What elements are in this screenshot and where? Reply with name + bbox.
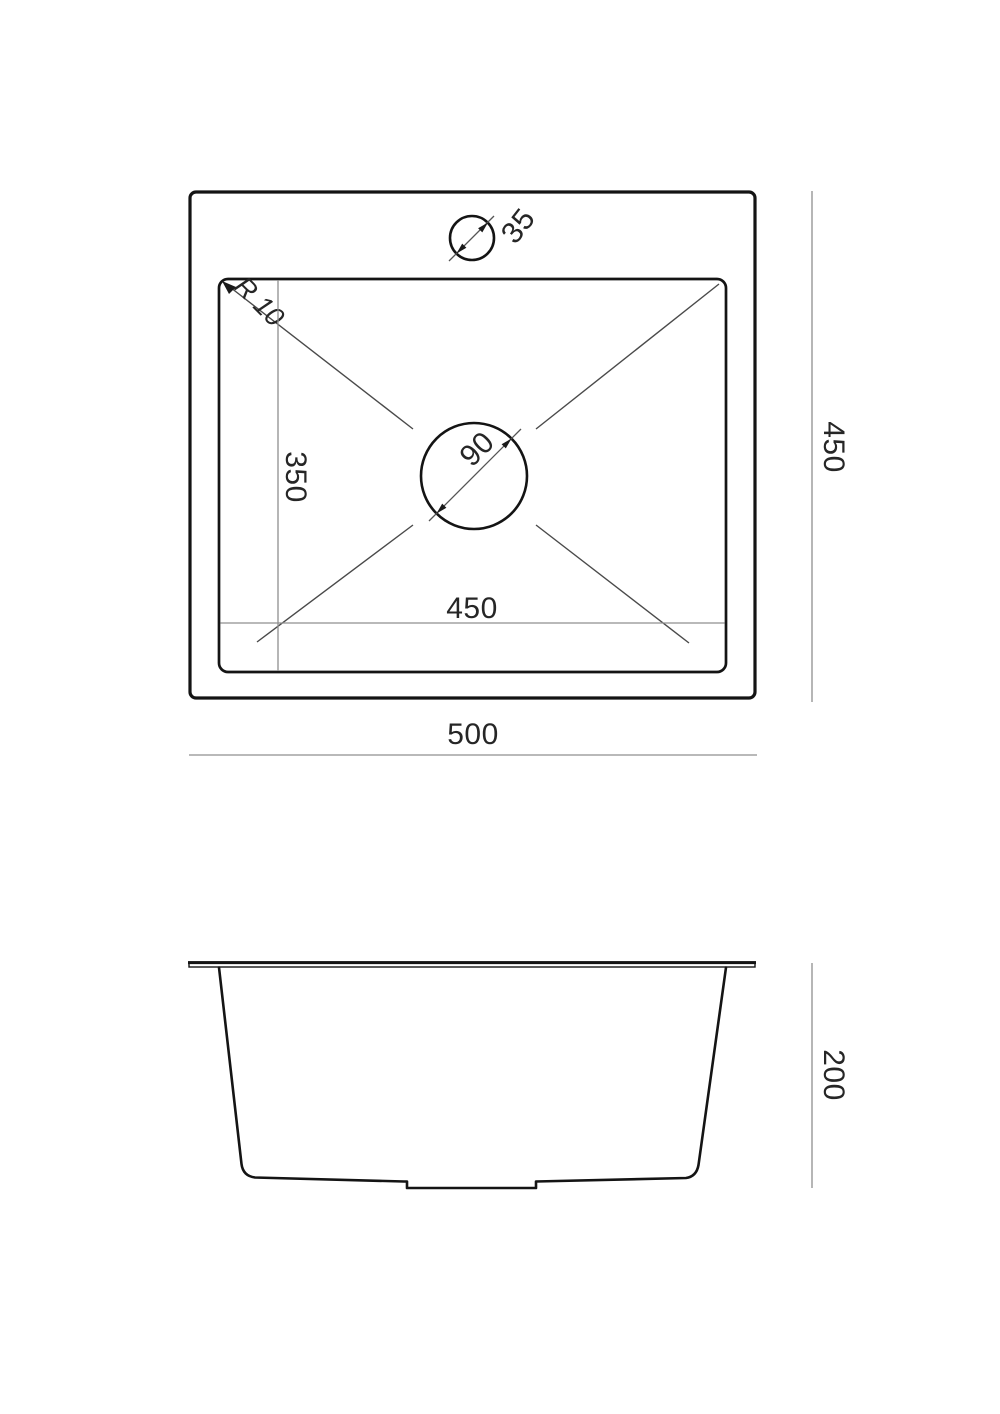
diagonal-bottomright-segment — [536, 525, 689, 643]
top-view: R 10 35 90 350 450 450 500 — [189, 191, 850, 755]
drain-hole-diameter-label: 90 — [453, 425, 501, 473]
bowl-depth-label: 350 — [279, 451, 312, 503]
faucet-hole-diameter-label: 35 — [495, 202, 542, 249]
diagonal-topright-segment — [536, 284, 719, 429]
side-view: 200 — [188, 962, 850, 1188]
technical-drawing-canvas: R 10 35 90 350 450 450 500 — [0, 0, 1000, 1414]
overall-depth-label: 450 — [817, 421, 850, 473]
drawing-page: R 10 35 90 350 450 450 500 — [0, 0, 1000, 1414]
overall-width-label: 500 — [447, 718, 499, 751]
bowl-width-label: 450 — [446, 592, 498, 625]
diagonal-bottomleft-segment — [257, 525, 413, 642]
sink-body-profile — [219, 968, 726, 1189]
overall-height-label: 200 — [817, 1049, 850, 1101]
